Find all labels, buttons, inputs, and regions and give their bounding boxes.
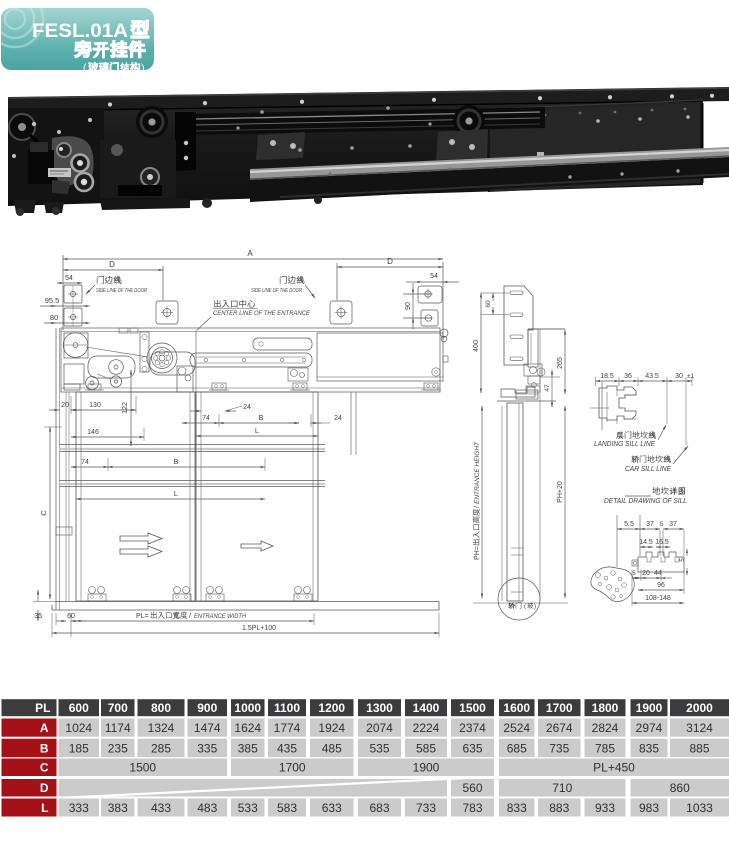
svg-text:333: 333 (69, 801, 89, 815)
svg-text:485: 485 (322, 741, 342, 755)
svg-text:900: 900 (197, 701, 217, 715)
svg-text:735: 735 (549, 741, 569, 755)
svg-text:533: 533 (238, 801, 258, 815)
svg-text:2000: 2000 (686, 701, 713, 715)
svg-text:1400: 1400 (413, 701, 440, 715)
svg-text:835: 835 (639, 741, 659, 755)
svg-text:1500: 1500 (459, 701, 486, 715)
svg-text:1624: 1624 (234, 721, 261, 735)
svg-text:1500: 1500 (129, 761, 156, 775)
svg-text:860: 860 (670, 781, 690, 795)
svg-text:560: 560 (462, 781, 482, 795)
svg-text:3124: 3124 (686, 721, 713, 735)
svg-text:833: 833 (507, 801, 527, 815)
svg-text:1774: 1774 (274, 721, 301, 735)
svg-text:1300: 1300 (366, 701, 393, 715)
svg-text:600: 600 (69, 701, 89, 715)
svg-text:683: 683 (369, 801, 389, 815)
svg-text:2824: 2824 (592, 721, 619, 735)
svg-text:885: 885 (689, 741, 709, 755)
svg-text:335: 335 (197, 741, 217, 755)
svg-text:PL: PL (35, 701, 50, 715)
svg-text:2674: 2674 (546, 721, 573, 735)
svg-text:1200: 1200 (318, 701, 345, 715)
svg-text:983: 983 (639, 801, 659, 815)
svg-text:D: D (40, 781, 49, 795)
svg-text:685: 685 (507, 741, 527, 755)
svg-text:1100: 1100 (274, 701, 300, 715)
svg-text:635: 635 (462, 741, 482, 755)
svg-text:710: 710 (552, 781, 572, 795)
svg-text:883: 883 (549, 801, 569, 815)
svg-text:285: 285 (151, 741, 171, 755)
svg-text:2524: 2524 (503, 721, 530, 735)
svg-text:535: 535 (369, 741, 389, 755)
svg-text:783: 783 (462, 801, 482, 815)
svg-text:1700: 1700 (279, 761, 306, 775)
svg-text:700: 700 (108, 701, 128, 715)
svg-text:1600: 1600 (503, 701, 530, 715)
svg-text:2074: 2074 (366, 721, 393, 735)
svg-text:583: 583 (277, 801, 297, 815)
svg-text:733: 733 (416, 801, 436, 815)
svg-text:185: 185 (69, 741, 89, 755)
svg-text:585: 585 (416, 741, 436, 755)
svg-text:2374: 2374 (459, 721, 486, 735)
svg-text:1000: 1000 (234, 701, 261, 715)
svg-text:235: 235 (108, 741, 128, 755)
svg-text:1800: 1800 (592, 701, 619, 715)
svg-text:A: A (40, 721, 49, 735)
svg-text:433: 433 (151, 801, 171, 815)
svg-text:1900: 1900 (413, 761, 440, 775)
svg-text:1024: 1024 (65, 721, 92, 735)
svg-text:385: 385 (238, 741, 258, 755)
svg-text:2224: 2224 (413, 721, 440, 735)
svg-text:383: 383 (108, 801, 128, 815)
svg-text:2974: 2974 (636, 721, 663, 735)
svg-text:1174: 1174 (105, 721, 131, 735)
svg-text:435: 435 (277, 741, 297, 755)
svg-text:1324: 1324 (148, 721, 175, 735)
svg-text:1700: 1700 (546, 701, 573, 715)
svg-text:483: 483 (197, 801, 217, 815)
svg-text:800: 800 (151, 701, 171, 715)
svg-text:1900: 1900 (636, 701, 663, 715)
svg-text:B: B (40, 741, 49, 755)
svg-text:785: 785 (595, 741, 615, 755)
svg-text:PL+450: PL+450 (593, 761, 635, 775)
svg-text:1033: 1033 (686, 801, 713, 815)
svg-text:C: C (40, 761, 49, 775)
svg-text:933: 933 (595, 801, 615, 815)
svg-text:1474: 1474 (194, 721, 221, 735)
svg-text:1924: 1924 (318, 721, 345, 735)
svg-text:L: L (41, 801, 48, 815)
svg-text:633: 633 (322, 801, 342, 815)
